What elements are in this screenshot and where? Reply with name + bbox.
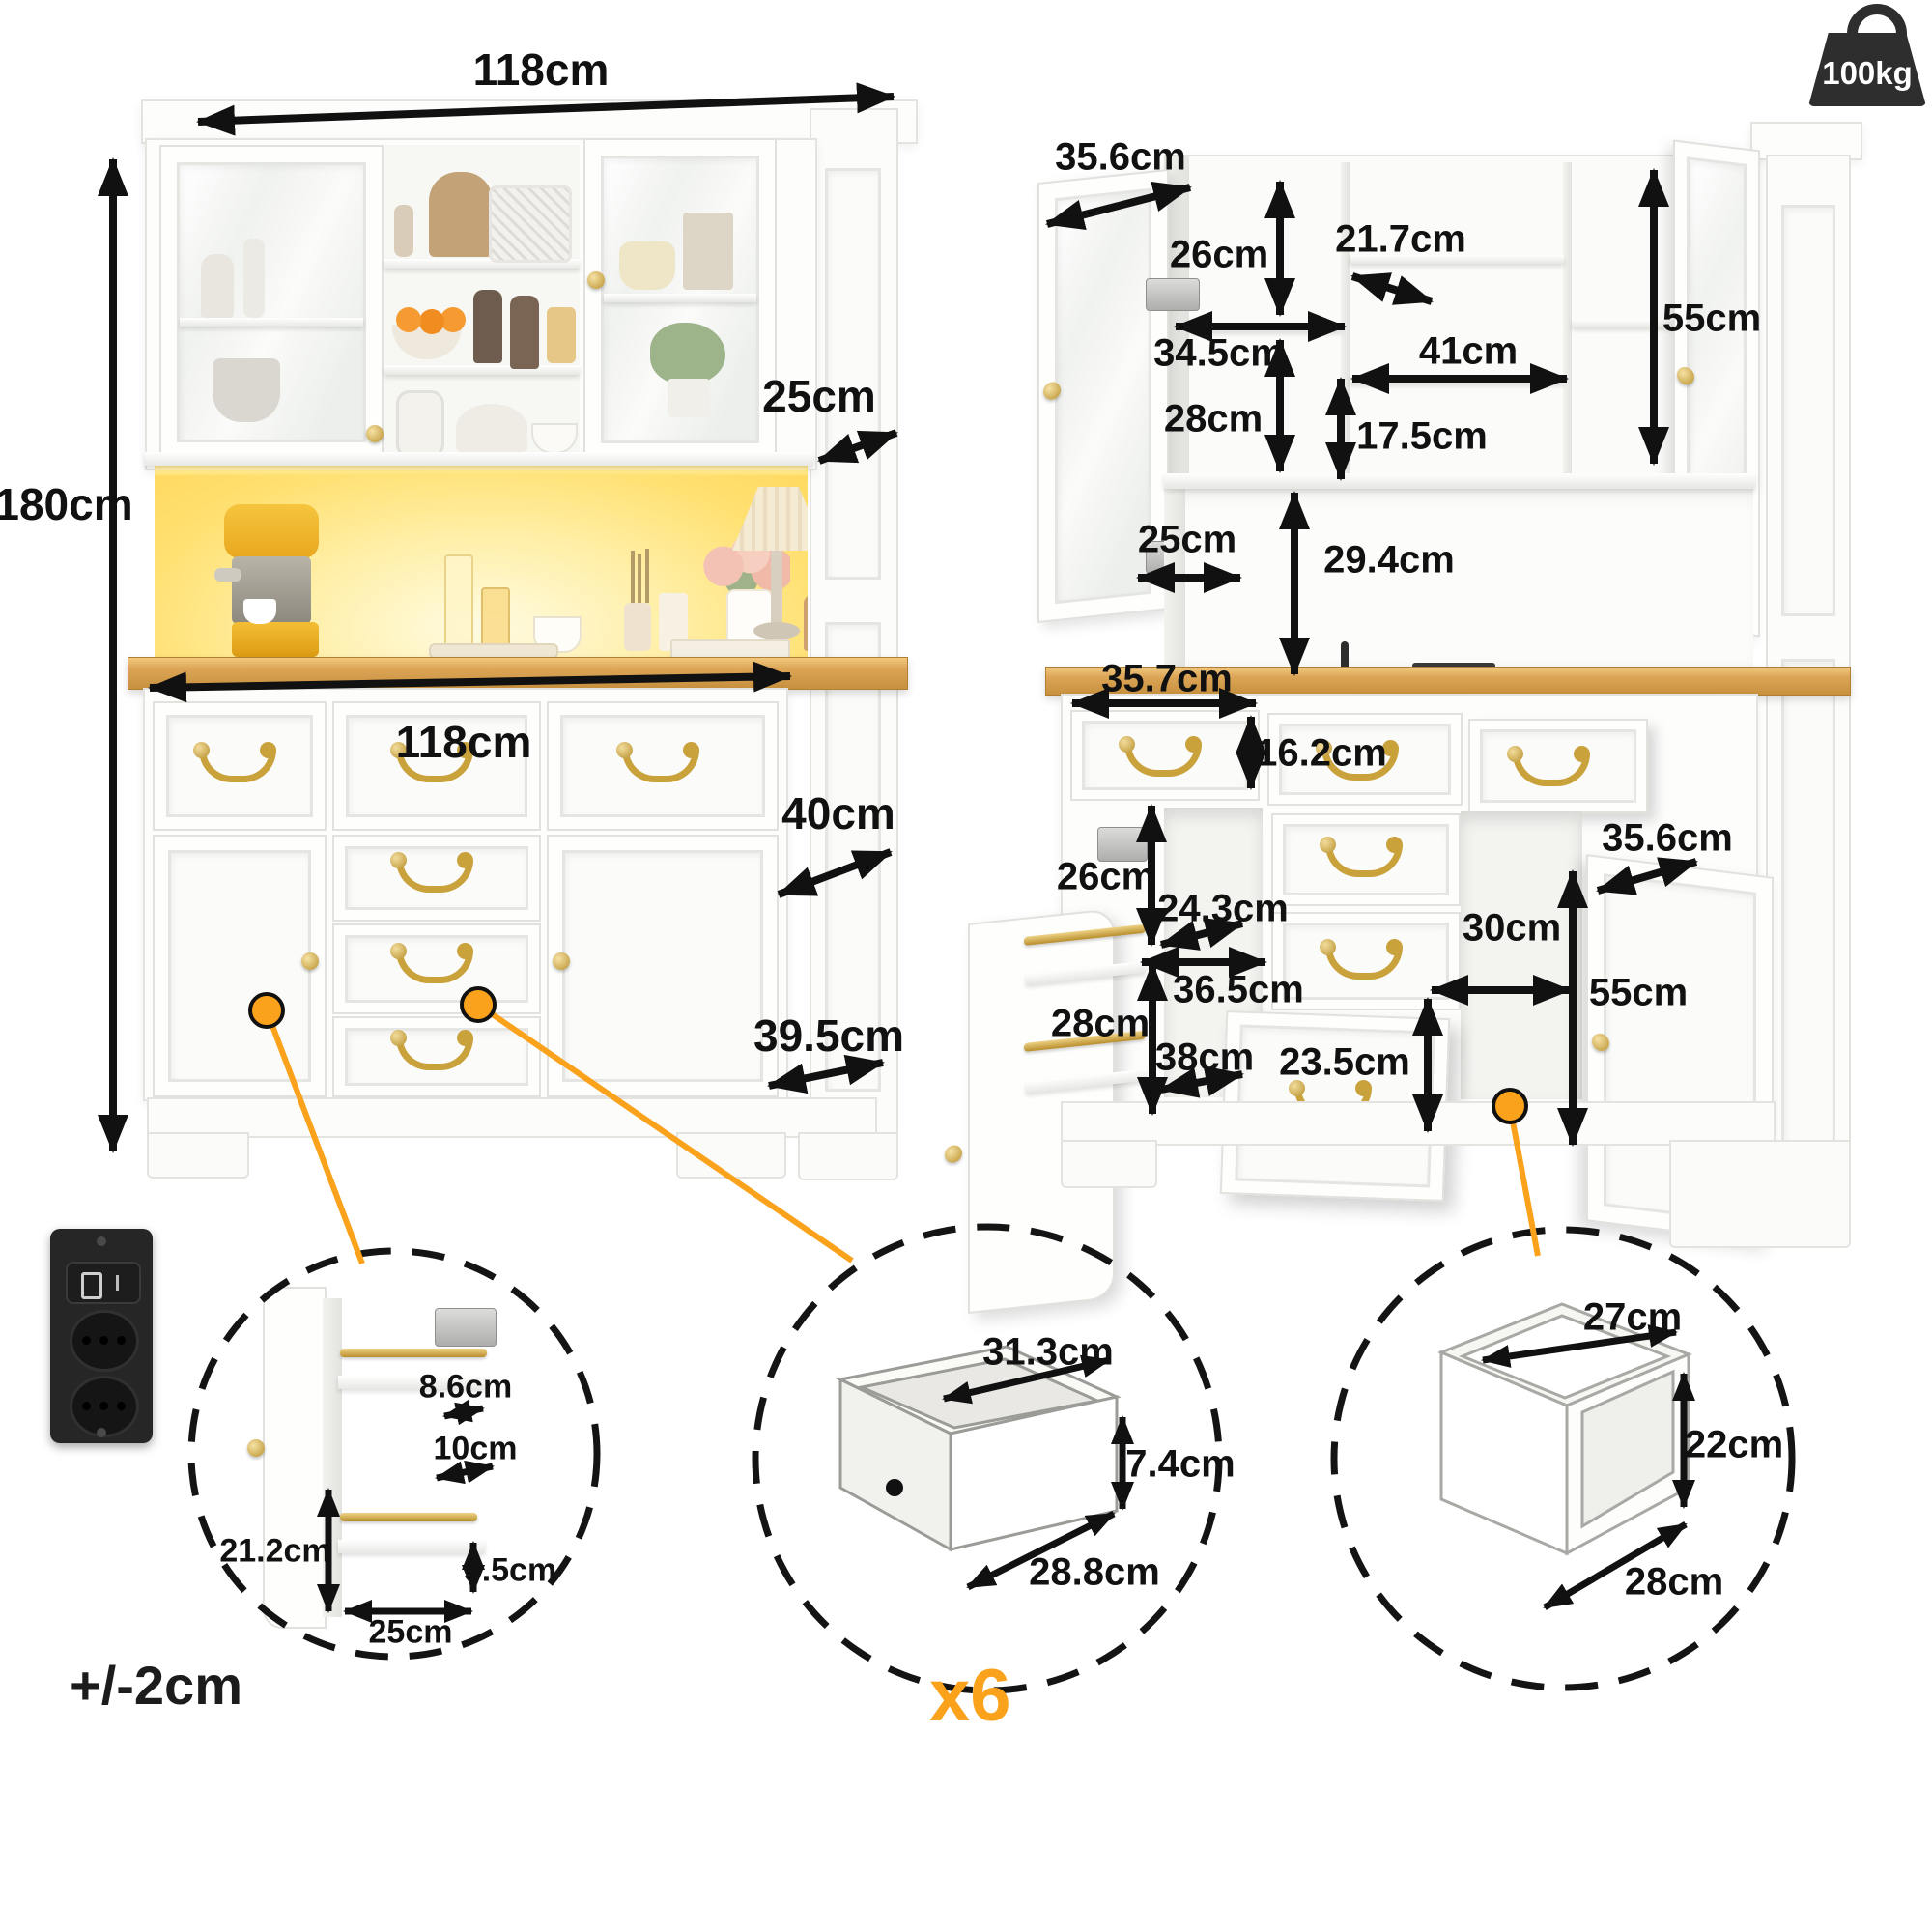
door-rack-rail bbox=[340, 1513, 477, 1521]
drawer-handle bbox=[1119, 736, 1207, 781]
wire-basket-silhouette bbox=[489, 185, 572, 263]
dim-comp-height: 22cm bbox=[1685, 1424, 1783, 1467]
hutch-left-door-knob bbox=[366, 425, 384, 442]
drawer-box-isometric bbox=[840, 1347, 1117, 1549]
cutting-board-silhouette bbox=[429, 172, 493, 257]
dim-rvb-left-upper: 26cm bbox=[1057, 856, 1155, 899]
bowl-silhouette bbox=[531, 423, 578, 454]
left-countertop bbox=[128, 657, 908, 690]
led-strip bbox=[155, 466, 808, 475]
dim-rack-rail-width: 8.6cm bbox=[419, 1369, 512, 1406]
dim-rv-left-upper: 26cm bbox=[1170, 234, 1268, 277]
bottle-silhouette bbox=[201, 254, 234, 318]
left-foot bbox=[1061, 1140, 1157, 1188]
dim-rack-shelf-depth: 10cm bbox=[434, 1431, 518, 1468]
left-foot bbox=[147, 1132, 249, 1179]
dim-rv-left-shelf: 34.5cm bbox=[1153, 332, 1285, 376]
table-lamp bbox=[697, 487, 808, 657]
drawer-handle bbox=[1507, 746, 1596, 790]
teapot-silhouette bbox=[619, 241, 675, 290]
dim-box-height: 7.4cm bbox=[1125, 1443, 1235, 1487]
dim-rvb-bottom-drawer: 23.5cm bbox=[1279, 1041, 1410, 1085]
product-dimension-diagram: 100kg bbox=[0, 0, 1932, 1932]
dim-rack-shelf-width: 25cm bbox=[369, 1614, 453, 1652]
drawer-handle bbox=[390, 1030, 479, 1074]
dim-rvb-door-width: 35.6cm bbox=[1602, 817, 1733, 861]
screw-icon bbox=[97, 1428, 106, 1437]
dim-rvb-inner-height: 55cm bbox=[1589, 972, 1688, 1015]
plant-pot-silhouette bbox=[668, 379, 710, 417]
lower-left-door-knob bbox=[301, 952, 319, 970]
dim-rv-inner-height: 55cm bbox=[1662, 298, 1761, 341]
drawer-knob-hole bbox=[886, 1479, 903, 1496]
dim-left-height: 180cm bbox=[0, 478, 133, 530]
dim-rv-mid-shelf: 41cm bbox=[1419, 330, 1518, 374]
hutch-open-shelves bbox=[384, 145, 580, 456]
grinder-silhouette bbox=[394, 205, 413, 257]
glass-pane bbox=[177, 162, 366, 442]
jug-silhouette bbox=[213, 358, 280, 422]
lower-right-door-knob bbox=[553, 952, 570, 970]
dim-rv-left-lower: 28cm bbox=[1164, 398, 1263, 441]
drawer-multiplier: x6 bbox=[929, 1654, 1011, 1738]
right-hutch-bottom-board bbox=[1164, 473, 1755, 489]
book-silhouette bbox=[683, 213, 733, 290]
serving-boards bbox=[429, 643, 558, 657]
tall-glass bbox=[444, 554, 473, 657]
pilaster-panel-upper bbox=[1781, 205, 1835, 616]
drawer-handle bbox=[193, 742, 282, 786]
jar-silhouette bbox=[547, 307, 576, 363]
dim-comp-depth: 28cm bbox=[1625, 1561, 1723, 1605]
right-plinth bbox=[1061, 1101, 1776, 1146]
dim-left-counter-width: 118cm bbox=[396, 716, 532, 768]
dim-rvb-left-lower-w: 38cm bbox=[1155, 1037, 1254, 1080]
usb-port-module bbox=[66, 1262, 141, 1304]
orange-fruit bbox=[396, 307, 421, 332]
drawer-handle bbox=[390, 943, 479, 987]
hutch-right-door-knob bbox=[587, 271, 605, 289]
pilaster-panel-lower bbox=[1781, 659, 1835, 1167]
rack-door-slab bbox=[263, 1287, 327, 1629]
glass-pane bbox=[601, 156, 759, 443]
hutch-left-glass-door bbox=[159, 145, 384, 460]
door-knob bbox=[945, 1145, 962, 1164]
screw-icon bbox=[97, 1236, 106, 1246]
led-backsplash-scene bbox=[155, 466, 808, 657]
dim-rvb-left-shelf: 24.3cm bbox=[1157, 888, 1289, 931]
right-side-pilaster bbox=[1766, 155, 1851, 1240]
dim-rvb-middle-width: 36.5cm bbox=[1173, 969, 1304, 1012]
drawer-handle bbox=[616, 742, 705, 786]
right-foot bbox=[1669, 1140, 1851, 1248]
plant-silhouette bbox=[650, 323, 725, 384]
drawer-handle bbox=[1320, 939, 1408, 983]
switch-led-icon bbox=[116, 1275, 119, 1291]
door-knob bbox=[247, 1439, 265, 1457]
dim-rvb-drawer-height: 16.2cm bbox=[1256, 732, 1387, 776]
drawer-handle bbox=[390, 852, 479, 896]
dim-rack-column-height: 21.2cm bbox=[219, 1533, 330, 1571]
diffuser-bottle bbox=[624, 603, 651, 651]
door-rack-rail bbox=[340, 1349, 487, 1357]
right-niche bbox=[1164, 489, 1753, 667]
power-outlet-panel bbox=[50, 1229, 153, 1443]
tolerance-note: +/-2cm bbox=[70, 1654, 242, 1717]
dim-left-base-depth: 39.5cm bbox=[753, 1009, 904, 1062]
hutch-bottom-board bbox=[145, 452, 813, 466]
dim-rvb-left-lower-h: 28cm bbox=[1051, 1003, 1150, 1046]
coffee-machine bbox=[214, 504, 328, 657]
usb-port-icon bbox=[81, 1272, 102, 1299]
dim-rv-door-width: 35.6cm bbox=[1055, 136, 1186, 180]
dim-rvb-drawer-width: 35.7cm bbox=[1101, 658, 1233, 701]
drawer-handle bbox=[1320, 837, 1408, 881]
dim-comp-width: 27cm bbox=[1583, 1296, 1682, 1340]
power-socket-icon bbox=[70, 1310, 139, 1372]
rv-open-right-compartment bbox=[1461, 811, 1582, 1099]
dim-left-hutch-depth: 25cm bbox=[762, 370, 876, 422]
open-compartment-isometric bbox=[1441, 1304, 1689, 1553]
dim-rv-mid-top: 21.7cm bbox=[1335, 218, 1466, 262]
door-hinge bbox=[1146, 278, 1200, 311]
pilaster-foot bbox=[798, 1132, 898, 1180]
bottle-silhouette bbox=[243, 239, 265, 318]
diffuser-sticks bbox=[638, 554, 641, 609]
dim-rv-niche-height: 29.4cm bbox=[1323, 539, 1455, 582]
dim-box-depth: 28.8cm bbox=[1029, 1551, 1160, 1595]
hutch-right-glass-door bbox=[583, 138, 777, 461]
dim-rv-mid-lower: 17.5cm bbox=[1356, 415, 1488, 459]
dim-box-width: 31.3cm bbox=[982, 1331, 1114, 1375]
plate-stack-silhouette bbox=[456, 404, 527, 452]
lower-left-door bbox=[153, 835, 327, 1097]
dim-left-counter-depth: 40cm bbox=[781, 787, 895, 839]
lower-right-door bbox=[547, 835, 779, 1097]
dim-rvb-open-width: 30cm bbox=[1463, 907, 1561, 951]
book-stack bbox=[670, 639, 790, 657]
dim-left-width-top: 118cm bbox=[473, 43, 610, 96]
dark-bottles-silhouette bbox=[473, 290, 502, 363]
dim-rack-rail-height: 9.5cm bbox=[464, 1552, 556, 1590]
dim-rv-niche-depth: 25cm bbox=[1138, 519, 1236, 562]
weight-capacity-label: 100kg bbox=[1822, 55, 1913, 92]
door-hinge bbox=[435, 1308, 497, 1347]
right-foot bbox=[676, 1132, 786, 1179]
egg-jar-silhouette bbox=[396, 390, 444, 458]
